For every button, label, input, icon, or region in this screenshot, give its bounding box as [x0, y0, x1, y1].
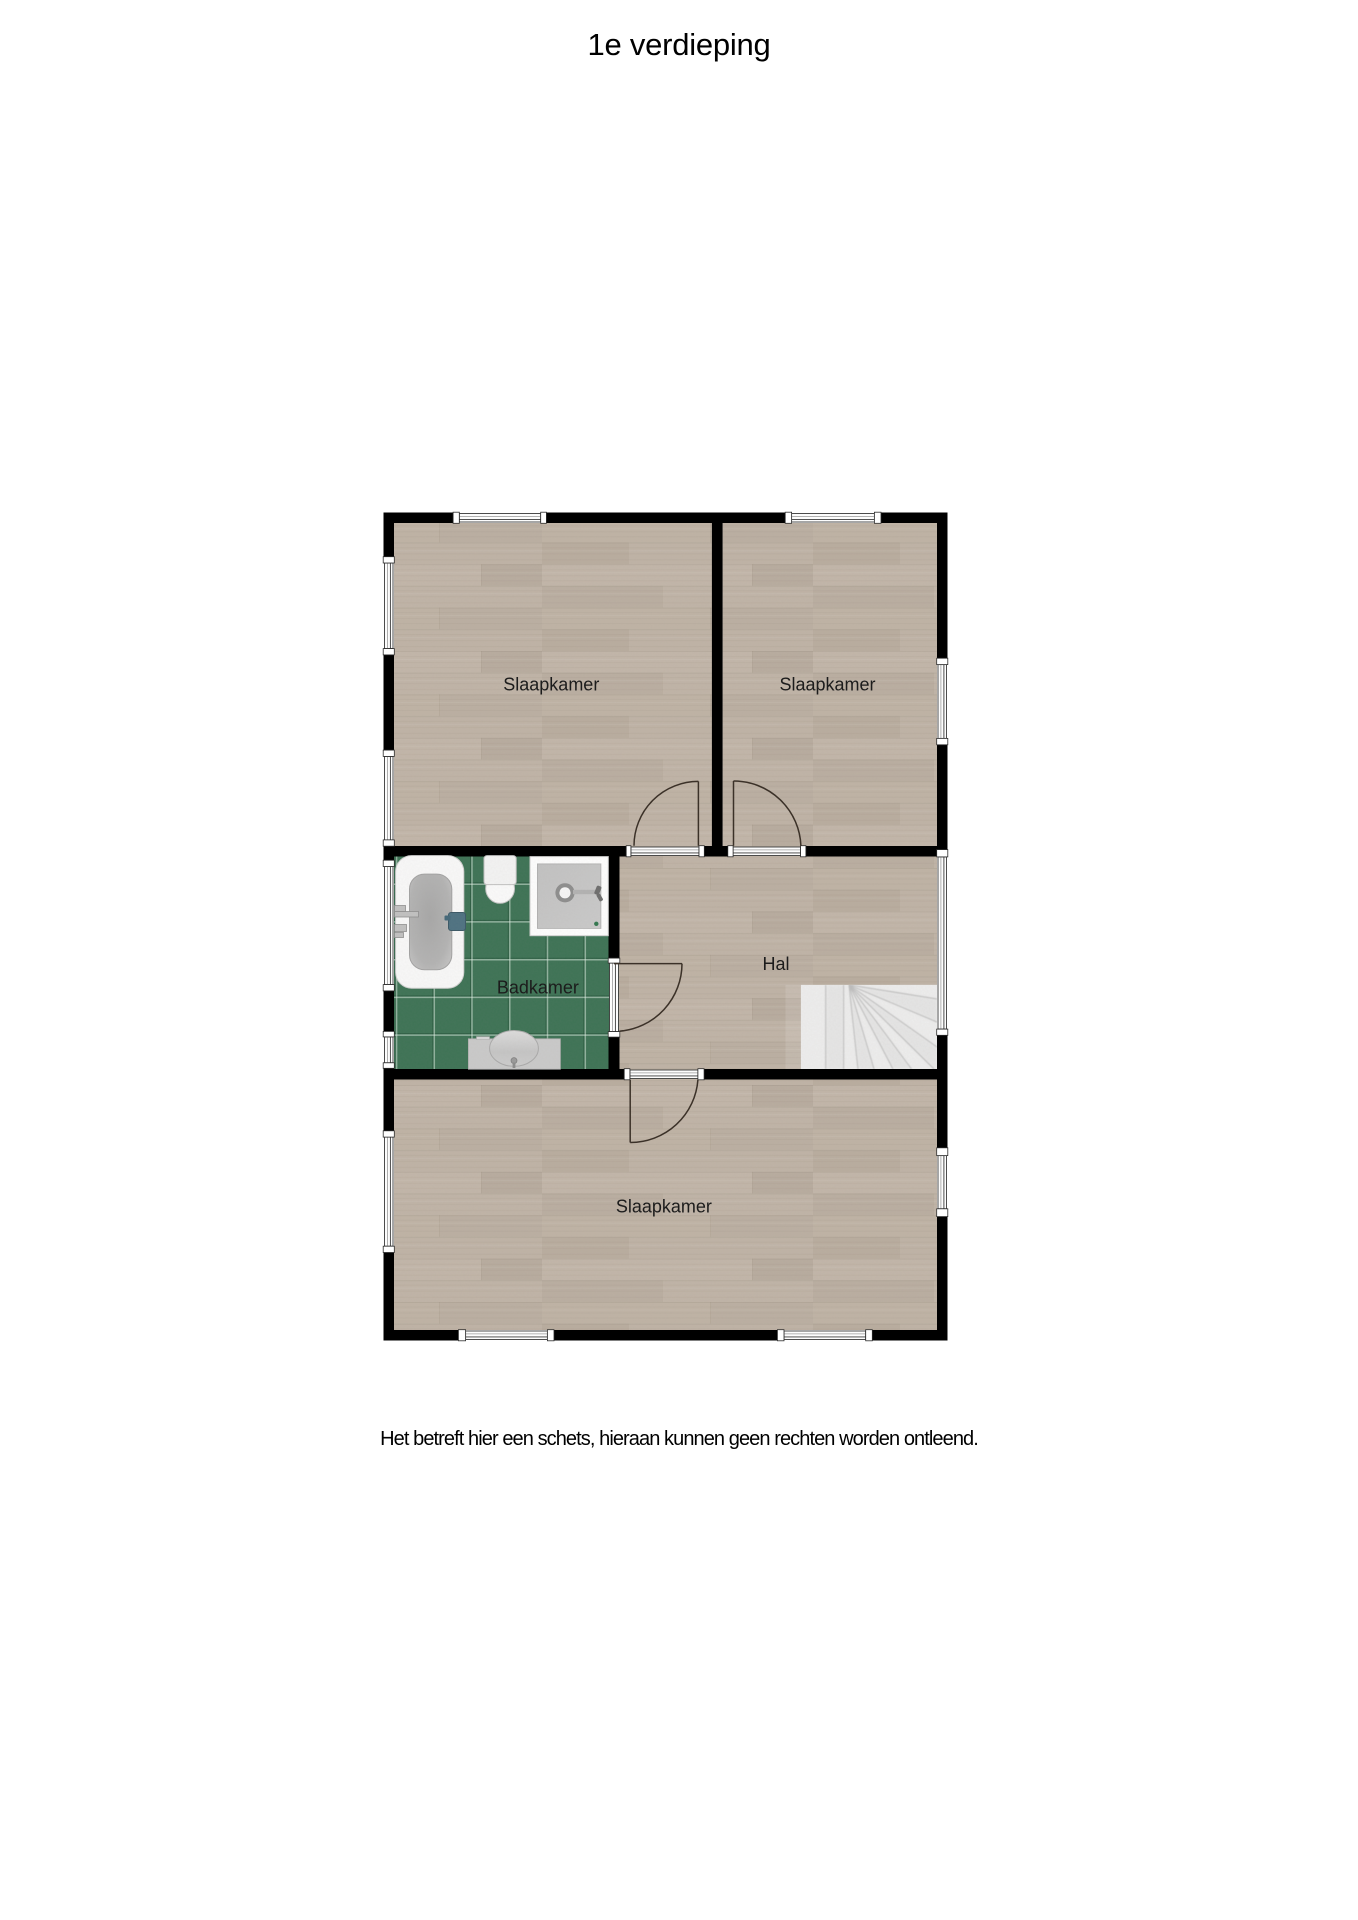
svg-text:Slaapkamer: Slaapkamer: [779, 674, 875, 694]
svg-text:Badkamer: Badkamer: [497, 978, 579, 998]
svg-text:Slaapkamer: Slaapkamer: [616, 1196, 712, 1216]
svg-text:Slaapkamer: Slaapkamer: [503, 674, 599, 694]
svg-text:Hal: Hal: [762, 954, 789, 974]
